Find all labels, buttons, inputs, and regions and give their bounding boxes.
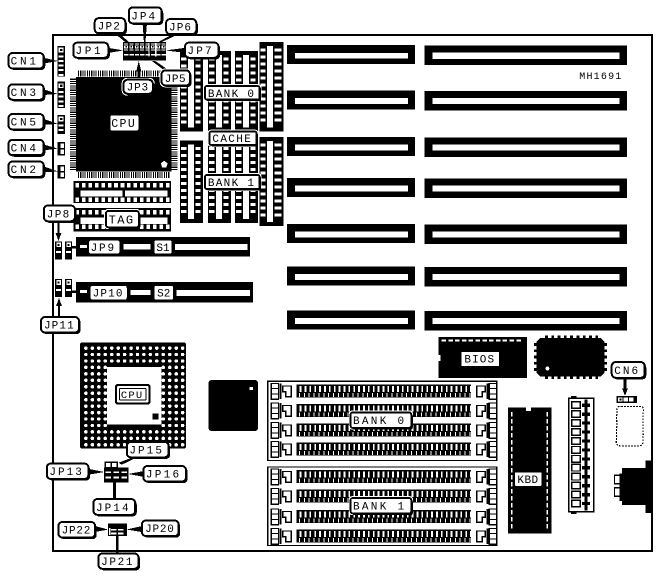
svg-text:BANK 0: BANK 0 bbox=[208, 89, 255, 101]
svg-text:CN5: CN5 bbox=[11, 118, 39, 130]
svg-text:JP6: JP6 bbox=[169, 23, 192, 35]
svg-text:CN4: CN4 bbox=[11, 144, 39, 156]
svg-text:JP11: JP11 bbox=[44, 321, 75, 333]
svg-text:S2: S2 bbox=[157, 289, 170, 301]
svg-text:JP21: JP21 bbox=[101, 557, 134, 569]
svg-text:JP4: JP4 bbox=[131, 11, 157, 23]
svg-text:JP9: JP9 bbox=[91, 243, 116, 255]
svg-text:JP20: JP20 bbox=[145, 524, 175, 536]
svg-text:BIOS: BIOS bbox=[464, 355, 495, 367]
svg-text:JP10: JP10 bbox=[93, 289, 124, 301]
svg-text:JP3: JP3 bbox=[127, 83, 149, 95]
svg-text:JP1: JP1 bbox=[75, 46, 103, 58]
svg-text:CN6: CN6 bbox=[614, 366, 640, 378]
svg-text:CPU: CPU bbox=[121, 390, 144, 402]
svg-text:JP7: JP7 bbox=[187, 46, 213, 58]
svg-text:JP15: JP15 bbox=[129, 446, 164, 458]
svg-text:TAG: TAG bbox=[109, 213, 135, 227]
svg-text:CN3: CN3 bbox=[11, 88, 39, 100]
svg-text:JP14: JP14 bbox=[96, 503, 131, 515]
svg-text:BANK 0: BANK 0 bbox=[353, 416, 406, 428]
svg-text:KBD: KBD bbox=[517, 475, 538, 487]
svg-text:MH1691: MH1691 bbox=[579, 72, 622, 83]
svg-text:CPU: CPU bbox=[111, 118, 136, 131]
svg-text:JP16: JP16 bbox=[146, 470, 181, 482]
svg-text:S1: S1 bbox=[156, 243, 170, 255]
svg-text:BANK 1: BANK 1 bbox=[353, 502, 406, 514]
svg-text:CACHE: CACHE bbox=[212, 134, 252, 146]
svg-text:JP8: JP8 bbox=[47, 209, 71, 221]
svg-text:JP13: JP13 bbox=[49, 467, 83, 479]
svg-text:JP22: JP22 bbox=[62, 526, 92, 538]
svg-text:CN2: CN2 bbox=[11, 165, 39, 177]
svg-text:CN1: CN1 bbox=[11, 57, 39, 69]
svg-text:JP5: JP5 bbox=[165, 74, 186, 86]
svg-text:BANK 1: BANK 1 bbox=[208, 178, 255, 190]
svg-text:JP2: JP2 bbox=[98, 22, 122, 34]
